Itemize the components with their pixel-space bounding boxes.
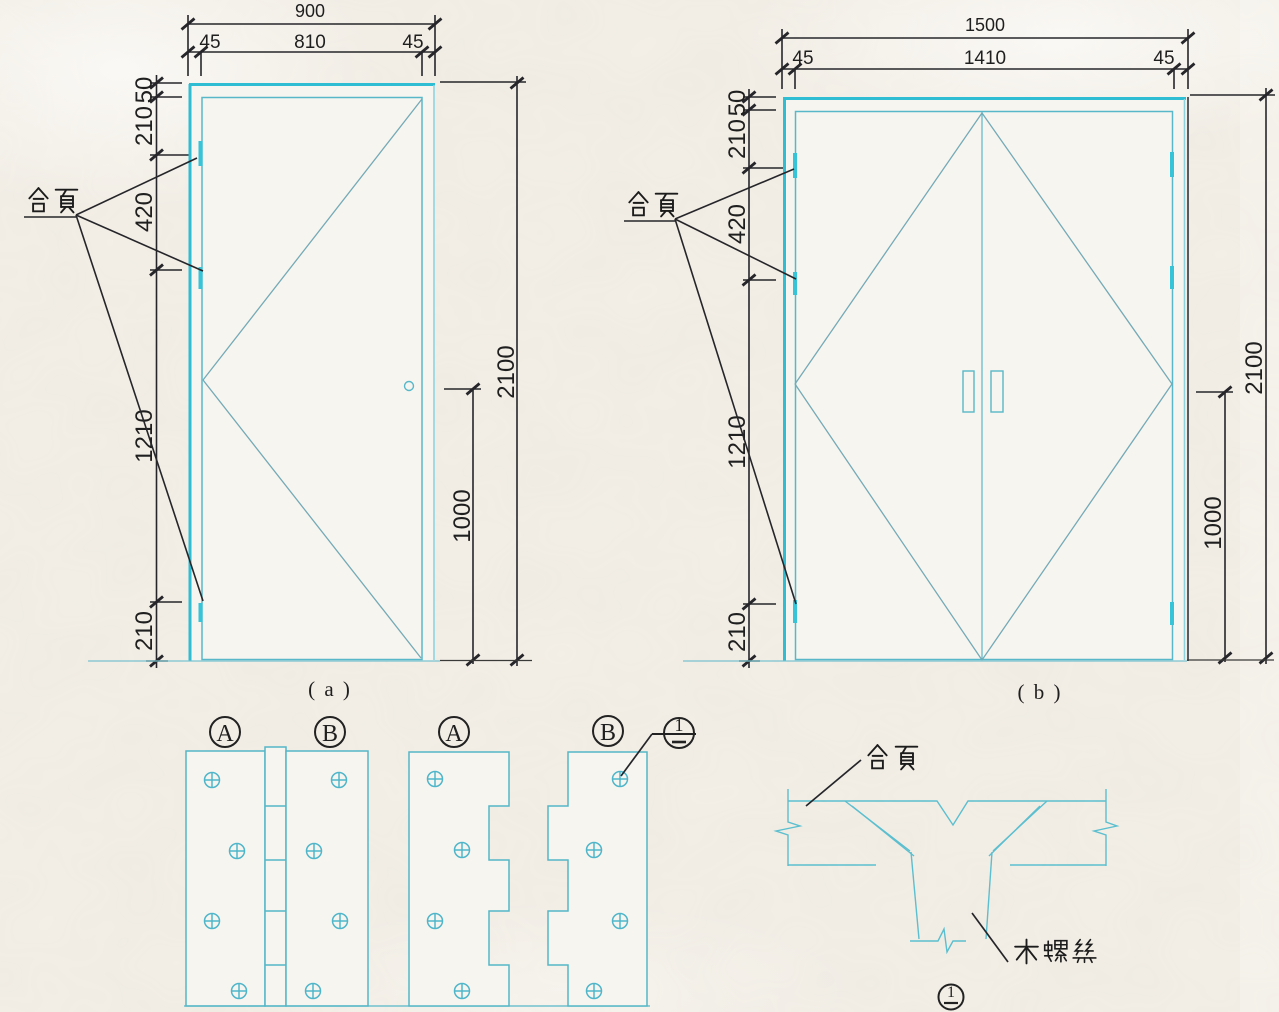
svg-text:210: 210	[131, 611, 158, 651]
svg-text:2100: 2100	[1241, 341, 1268, 394]
svg-text:50: 50	[131, 77, 158, 104]
svg-text:45: 45	[1153, 48, 1174, 69]
svg-text:2100: 2100	[493, 345, 520, 398]
svg-text:1500: 1500	[965, 15, 1005, 35]
svg-text:B: B	[600, 720, 616, 746]
svg-text:810: 810	[294, 32, 326, 53]
svg-text:420: 420	[724, 204, 751, 244]
svg-text:A: A	[216, 721, 234, 747]
svg-text:( b ): ( b )	[1018, 680, 1063, 704]
svg-text:1: 1	[947, 984, 955, 1001]
svg-text:420: 420	[131, 192, 158, 232]
svg-text:A: A	[445, 721, 463, 747]
svg-text:45: 45	[792, 48, 813, 69]
svg-text:B: B	[322, 721, 338, 747]
svg-text:( a ): ( a )	[308, 677, 352, 701]
svg-text:50: 50	[724, 90, 751, 117]
svg-text:900: 900	[295, 1, 325, 21]
svg-text:1410: 1410	[964, 48, 1006, 69]
svg-text:1: 1	[675, 715, 684, 735]
svg-text:45: 45	[402, 32, 423, 53]
svg-text:210: 210	[131, 106, 158, 146]
svg-text:45: 45	[199, 32, 220, 53]
svg-text:210: 210	[724, 119, 751, 159]
svg-text:1000: 1000	[1200, 496, 1227, 549]
svg-text:1000: 1000	[449, 489, 476, 542]
svg-text:210: 210	[724, 612, 751, 652]
svg-text:1210: 1210	[131, 409, 158, 462]
svg-text:1210: 1210	[724, 415, 751, 468]
